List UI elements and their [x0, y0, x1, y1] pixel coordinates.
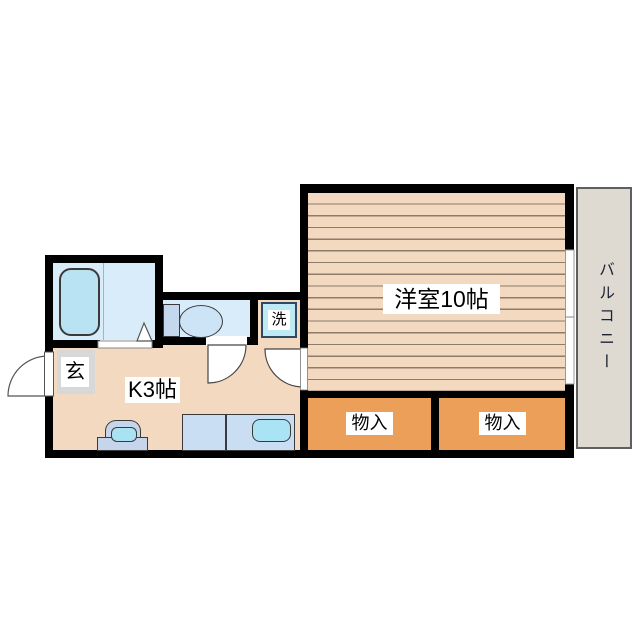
bathroom-door-icon — [98, 323, 152, 348]
kitchen-sink-icon — [252, 419, 291, 442]
washing-machine-icon: 洗 — [261, 302, 297, 338]
kitchen-label: K3帖 — [125, 377, 180, 403]
living-room-label: 洋室10帖 — [383, 284, 500, 314]
entry-door-icon — [8, 352, 54, 396]
storage-right-label: 物入 — [479, 412, 526, 435]
toilet-tank-icon — [163, 304, 180, 337]
living-door-swing-icon — [265, 348, 308, 390]
laundry-label: 洗 — [268, 310, 289, 330]
entrance-label: 玄 — [61, 357, 89, 387]
bathtub-icon — [59, 268, 100, 336]
counter-divider — [225, 414, 227, 451]
storage-left-label: 物入 — [346, 412, 393, 435]
floor-plan: バルコニー — [0, 0, 640, 640]
toilet-icon — [179, 305, 223, 338]
sliding-window-icon — [566, 250, 575, 384]
stove-burner-icon — [111, 427, 137, 442]
toilet-door-swing-icon — [206, 336, 247, 383]
bathroom-partition-line — [103, 263, 104, 340]
